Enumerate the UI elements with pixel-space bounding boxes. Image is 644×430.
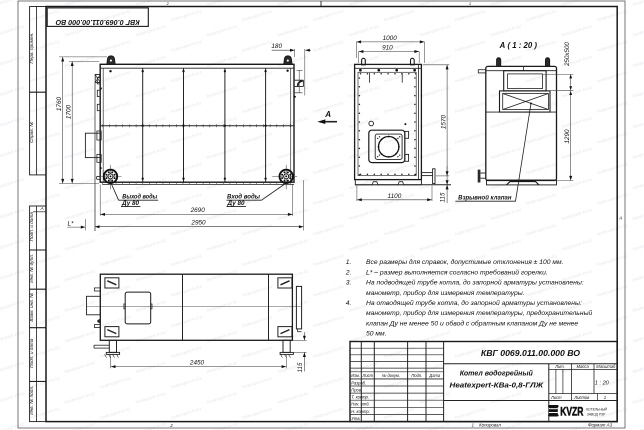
svg-text:1 : 20: 1 : 20 (595, 381, 610, 387)
svg-text:Котел водогрейный: Котел водогрейный (460, 368, 533, 377)
svg-text:4.: 4. (346, 300, 352, 307)
svg-text:На отводящей трубе котла, до з: На отводящей трубе котла, до запорной ар… (366, 299, 582, 307)
svg-text:А: А (324, 110, 331, 119)
svg-text:250х500: 250х500 (564, 42, 571, 67)
svg-text:L*: L* (67, 220, 74, 227)
svg-text:КВГ 0.069.011.00.000 ВО: КВГ 0.069.011.00.000 ВО (55, 18, 139, 27)
svg-text:Масса: Масса (577, 364, 590, 369)
svg-text:Heatexpert-КВа-0,8-ГЛЖ: Heatexpert-КВа-0,8-ГЛЖ (450, 380, 544, 389)
svg-text:Масштаб: Масштаб (596, 364, 616, 369)
svg-text:Взрывной клапан: Взрывной клапан (458, 194, 512, 201)
svg-text:Подп.: Подп. (411, 373, 422, 378)
svg-text:Ду 80: Ду 80 (227, 200, 245, 207)
svg-text:1570: 1570 (440, 114, 447, 129)
svg-text:2.: 2. (345, 269, 352, 276)
svg-text:50 мм.: 50 мм. (366, 331, 387, 338)
svg-text:1290: 1290 (564, 129, 571, 144)
svg-text:Утв.: Утв. (351, 416, 360, 421)
svg-text:КОТЕЛЬНЫЙ: КОТЕЛЬНЫЙ (586, 407, 607, 411)
svg-text:ЗАВОД РЗР: ЗАВОД РЗР (587, 412, 606, 416)
svg-text:манометр, прибор для измерения: манометр, прибор для измерения температу… (366, 309, 593, 317)
svg-text:2450: 2450 (189, 359, 205, 366)
svg-text:Изм.: Изм. (351, 373, 360, 378)
svg-text:1000: 1000 (383, 35, 398, 42)
svg-text:1: 1 (469, 1, 471, 6)
svg-text:Лит.: Лит. (554, 364, 565, 369)
svg-text:клапан Ду не менее 50 и обвод: клапан Ду не менее 50 и обвод с обратным… (366, 319, 578, 327)
svg-text:910: 910 (382, 45, 393, 52)
svg-text:Копировал: Копировал (479, 423, 501, 428)
svg-text:Инв. № дубл.: Инв. № дубл. (29, 254, 34, 283)
svg-text:А ( 1 : 20 ): А ( 1 : 20 ) (499, 41, 538, 50)
svg-text:Пров.: Пров. (351, 388, 362, 393)
svg-text:№ докум.: № докум. (382, 373, 400, 378)
svg-text:Разраб.: Разраб. (351, 380, 366, 385)
svg-text:Формат А3: Формат А3 (588, 423, 613, 428)
svg-text:L* – размер выполняется соглас: L* – размер выполняется согласно требова… (366, 268, 548, 276)
svg-text:Лист: Лист (362, 373, 374, 378)
svg-text:Т. контр.: Т. контр. (351, 395, 369, 400)
svg-text:Ду 80: Ду 80 (121, 200, 139, 207)
svg-text:КВГ 0069.011.00.000 ВО: КВГ 0069.011.00.000 ВО (481, 348, 580, 358)
svg-text:Н. контр.: Н. контр. (351, 409, 369, 414)
svg-text:Дата: Дата (428, 373, 441, 378)
svg-text:Перв. примен.: Перв. примен. (29, 32, 34, 63)
svg-text:Все размеры для справок, допус: Все размеры для справок, допустимые откл… (366, 258, 564, 266)
svg-text:115: 115 (440, 192, 447, 202)
svg-text:2950: 2950 (190, 220, 206, 227)
svg-text:Листов: Листов (573, 395, 590, 400)
svg-text:1760: 1760 (56, 96, 63, 111)
svg-text:Подп. и дата: Подп. и дата (29, 338, 34, 368)
svg-text:3.: 3. (346, 280, 352, 287)
svg-text:А: А (618, 216, 622, 221)
svg-text:Лист: Лист (550, 395, 562, 400)
svg-text:KVZR: KVZR (560, 405, 583, 419)
svg-text:2690: 2690 (190, 207, 206, 214)
svg-text:1: 1 (472, 422, 474, 427)
svg-text:1.: 1. (346, 259, 352, 266)
svg-text:манометр, прибор для измерения: манометр, прибор для измерения температу… (366, 289, 525, 297)
svg-text:Подп. и дата: Подп. и дата (29, 212, 34, 242)
svg-text:На подводящей трубе котла, до: На подводящей трубе котла, до запорной а… (366, 279, 584, 287)
svg-text:А: А (40, 206, 44, 211)
svg-text:180: 180 (271, 43, 282, 50)
svg-text:Справ. №: Справ. № (29, 122, 34, 143)
svg-text:1700: 1700 (66, 104, 73, 119)
svg-text:115: 115 (297, 362, 304, 372)
svg-text:Взам. инв. №: Взам. инв. № (29, 293, 34, 322)
svg-text:1100: 1100 (388, 193, 402, 200)
svg-text:Нач. отд.: Нач. отд. (351, 402, 369, 407)
svg-text:Инв. № подл.: Инв. № подл. (29, 386, 34, 415)
